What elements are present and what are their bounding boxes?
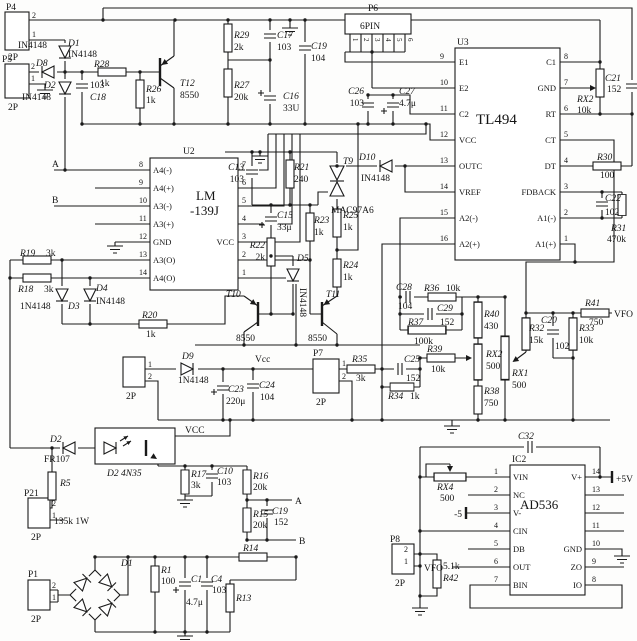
connector-P21 [28, 498, 50, 528]
resistor-R35 [347, 365, 375, 373]
resistor-R1 [151, 566, 159, 592]
svg-text:9: 9 [592, 557, 596, 566]
svg-text:R17: R17 [190, 470, 208, 480]
svg-text:104: 104 [260, 393, 275, 403]
svg-text:152: 152 [607, 85, 622, 95]
svg-text:R13: R13 [235, 594, 252, 604]
svg-text:T12: T12 [180, 79, 195, 89]
svg-text:33U: 33U [283, 104, 300, 114]
svg-text:VCC: VCC [217, 237, 235, 247]
svg-text:430: 430 [484, 322, 499, 332]
svg-text:R31: R31 [610, 224, 626, 234]
diode-FR107 [60, 441, 78, 455]
p6-ref: P6 [368, 4, 378, 14]
p6-type: 6PIN [360, 22, 380, 32]
svg-text:DT: DT [545, 161, 557, 171]
p7-ref: P7 [313, 349, 323, 359]
svg-text:3k: 3k [356, 374, 366, 384]
svg-text:R16: R16 [252, 472, 269, 482]
svg-text:A1(-): A1(-) [537, 213, 556, 223]
svg-text:8: 8 [564, 52, 568, 61]
resistor-R41 [581, 309, 609, 317]
capacitor-C19a [298, 42, 312, 54]
svg-text:IN4148: IN4148 [22, 93, 51, 103]
resistor-R24 [333, 259, 341, 287]
ic2-ref: IC2 [512, 455, 527, 465]
potentiometer-RX2b [474, 344, 482, 380]
p6-pin2: 2 [362, 38, 370, 42]
svg-text:GND: GND [538, 83, 556, 93]
svg-text:V+: V+ [571, 472, 582, 482]
p6-pin5: 5 [395, 38, 403, 42]
p1-type: 2P [31, 615, 41, 625]
svg-text:OUTC: OUTC [459, 161, 482, 171]
svg-text:4: 4 [564, 156, 568, 165]
svg-text:GND: GND [153, 237, 171, 247]
resistor-R29 [224, 24, 232, 52]
svg-text:5: 5 [564, 130, 568, 139]
net-plus5v: +5V [616, 475, 633, 485]
svg-text:IN4148: IN4148 [96, 297, 125, 307]
svg-text:1: 1 [242, 268, 246, 277]
net-VCC: VCC [185, 426, 205, 436]
svg-text:5.1k: 5.1k [443, 562, 460, 572]
svg-text:103: 103 [90, 81, 105, 91]
p21-type: 2P [31, 533, 41, 543]
svg-text:4.7μ: 4.7μ [399, 99, 416, 109]
svg-text:12: 12 [440, 130, 448, 139]
u2-part1: LM [196, 188, 216, 203]
svg-text:R29: R29 [233, 31, 250, 41]
svg-text:20k: 20k [253, 521, 268, 531]
svg-text:8: 8 [592, 575, 596, 584]
diode-D5 [286, 266, 300, 284]
svg-text:C1: C1 [546, 57, 556, 67]
svg-text:103: 103 [230, 175, 245, 185]
capacitor-C32 [524, 440, 536, 454]
svg-text:A2(+): A2(+) [459, 239, 480, 249]
svg-text:103: 103 [350, 99, 365, 109]
svg-text:DB: DB [513, 544, 525, 554]
svg-text:R22: R22 [249, 241, 266, 251]
p5-ref: P5 [2, 55, 12, 65]
svg-text:500: 500 [440, 494, 455, 504]
svg-text:1N4148: 1N4148 [20, 302, 51, 312]
svg-text:103: 103 [212, 586, 227, 596]
svg-text:A4(O): A4(O) [153, 273, 175, 283]
svg-text:2: 2 [494, 485, 498, 494]
net-A-u2: A [52, 160, 59, 170]
svg-text:D2 4N35: D2 4N35 [106, 469, 142, 479]
svg-text:CT: CT [545, 135, 557, 145]
svg-text:R39: R39 [426, 345, 443, 355]
svg-text:10k: 10k [577, 106, 592, 116]
svg-text:VREF: VREF [459, 187, 481, 197]
capacitor-C21 [625, 80, 637, 92]
svg-text:102: 102 [555, 342, 570, 352]
svg-text:R37: R37 [407, 318, 425, 328]
svg-text:T10: T10 [226, 290, 241, 300]
svg-text:C29: C29 [437, 304, 453, 314]
schematic-canvas: P4 2 1 2P P5 2 1 2P P6 6PIN 1 2 3 4 5 6 … [0, 0, 637, 641]
svg-text:VCC: VCC [459, 135, 477, 145]
svg-text:135k 1W: 135k 1W [54, 517, 89, 527]
resistor-R18 [23, 274, 51, 282]
net-B-u2: B [52, 196, 58, 206]
svg-text:C27: C27 [399, 87, 416, 97]
svg-text:3: 3 [494, 503, 498, 512]
p1-ref: P1 [28, 570, 38, 580]
svg-text:D10: D10 [358, 153, 376, 163]
net-VFO-ad536: VFO [424, 564, 443, 574]
svg-text:R35: R35 [351, 355, 368, 365]
svg-text:R20: R20 [141, 311, 158, 321]
svg-text:152: 152 [274, 518, 289, 528]
capacitor-C29 [424, 307, 436, 321]
svg-text:C1: C1 [191, 575, 202, 585]
svg-text:A4(+): A4(+) [153, 183, 174, 193]
svg-text:152: 152 [440, 318, 455, 328]
svg-text:C22: C22 [605, 194, 621, 204]
svg-text:C28: C28 [396, 283, 412, 293]
svg-text:16: 16 [440, 234, 448, 243]
svg-text:C26: C26 [348, 87, 364, 97]
triac-T9 [328, 163, 346, 199]
optocoupler-led [101, 441, 119, 455]
p21-pin2: 2 [52, 499, 56, 508]
svg-text:12: 12 [139, 232, 147, 241]
svg-text:A3(-): A3(-) [153, 201, 172, 211]
svg-text:750: 750 [484, 399, 499, 409]
svg-text:1k: 1k [343, 223, 353, 233]
capacitor-C17 [263, 30, 277, 42]
svg-text:RX1: RX1 [511, 369, 528, 379]
svg-text:14: 14 [440, 182, 448, 191]
svg-text:4: 4 [494, 521, 498, 530]
svg-text:3k: 3k [191, 481, 201, 491]
svg-text:1k: 1k [146, 96, 156, 106]
j1-type: 2P [126, 392, 136, 402]
svg-text:C4: C4 [211, 575, 222, 585]
diode-D4 [83, 286, 97, 304]
svg-text:3k: 3k [44, 285, 54, 295]
diode-D10 [377, 159, 395, 173]
potentiometer-RX4 [434, 473, 466, 481]
svg-text:A3(O): A3(O) [153, 255, 175, 265]
resistor-R33 [569, 318, 577, 350]
j1-pin1: 1 [148, 360, 152, 369]
svg-text:IN4148: IN4148 [68, 50, 97, 60]
svg-text:V-: V- [513, 508, 521, 518]
svg-text:3: 3 [564, 182, 568, 191]
potentiometer-RX2a [596, 69, 604, 97]
p4-pin2: 2 [32, 11, 36, 20]
p8-pin1: 1 [404, 557, 408, 566]
svg-text:750: 750 [589, 318, 604, 328]
svg-text:R41: R41 [584, 299, 600, 309]
resistor-R15 [243, 508, 251, 532]
svg-text:C10: C10 [217, 467, 233, 477]
p6-pin4: 4 [384, 38, 392, 42]
p4-pin1: 1 [32, 30, 36, 39]
ic2-part: AD536 [520, 497, 559, 512]
p5-pin1: 1 [31, 74, 35, 83]
svg-text:R15: R15 [252, 510, 269, 520]
svg-text:3: 3 [242, 232, 246, 241]
svg-text:CIN: CIN [513, 526, 528, 536]
resistor-R40 [474, 302, 482, 338]
svg-text:OUT: OUT [513, 562, 531, 572]
svg-text:FR107: FR107 [44, 455, 70, 465]
svg-text:220μ: 220μ [226, 397, 245, 407]
svg-text:10: 10 [440, 78, 448, 87]
svg-text:RX4: RX4 [436, 483, 454, 493]
svg-text:R21: R21 [293, 163, 309, 173]
p1-pin1: 1 [52, 593, 56, 602]
resistor-R23 [306, 213, 314, 241]
svg-text:IN4148: IN4148 [297, 288, 307, 317]
svg-text:NC: NC [513, 490, 525, 500]
p8-type: 2P [395, 579, 405, 589]
svg-text:13: 13 [440, 156, 448, 165]
svg-text:R25: R25 [342, 211, 359, 221]
p5-type: 2P [8, 103, 18, 113]
resistor-R38 [474, 386, 482, 414]
resistor-R21 [286, 160, 294, 188]
svg-text:102: 102 [605, 208, 620, 218]
svg-text:6: 6 [494, 557, 498, 566]
svg-text:13: 13 [139, 250, 147, 259]
net-A-bottom: A [295, 497, 302, 507]
svg-text:100: 100 [600, 171, 615, 181]
svg-text:152: 152 [406, 374, 421, 384]
svg-text:20k: 20k [253, 483, 268, 493]
svg-text:C19: C19 [311, 42, 327, 52]
svg-text:IN4148: IN4148 [361, 174, 390, 184]
svg-text:C15: C15 [277, 211, 293, 221]
svg-text:1k: 1k [343, 273, 353, 283]
connector-P8 [392, 544, 414, 574]
svg-text:15: 15 [440, 208, 448, 217]
svg-text:10: 10 [592, 539, 600, 548]
p8-pin2: 2 [404, 545, 408, 554]
svg-text:10k: 10k [579, 336, 594, 346]
svg-text:104: 104 [398, 302, 413, 312]
resistor-R5 [48, 472, 56, 500]
svg-text:C18: C18 [90, 93, 106, 103]
net-VFO-r41: VFO [614, 310, 633, 320]
diode-D2 [58, 79, 72, 97]
svg-text:1: 1 [494, 467, 498, 476]
ic-U3-TL494 [455, 48, 560, 260]
svg-text:R1: R1 [160, 566, 172, 576]
capacitor-C20 [546, 326, 560, 338]
connector-J1 [123, 357, 145, 387]
svg-text:D4: D4 [95, 284, 108, 294]
svg-text:R14: R14 [242, 544, 259, 554]
svg-text:RT: RT [546, 109, 557, 119]
svg-text:C23: C23 [228, 385, 244, 395]
resistor-R16 [243, 470, 251, 494]
capacitor-C15 [264, 213, 278, 225]
svg-text:12: 12 [592, 503, 600, 512]
svg-text:R26: R26 [145, 85, 162, 95]
svg-text:E1: E1 [459, 57, 468, 67]
svg-text:2: 2 [564, 208, 568, 217]
svg-text:D2: D2 [43, 81, 56, 91]
svg-text:8: 8 [139, 160, 143, 169]
net-B-bottom: B [299, 537, 305, 547]
svg-text:R34: R34 [387, 392, 404, 402]
u2-ref: U2 [183, 147, 195, 157]
svg-text:7: 7 [494, 575, 498, 584]
u3-ref: U3 [457, 38, 469, 48]
svg-text:R30: R30 [596, 153, 613, 163]
capacitor-C18 [75, 80, 89, 92]
svg-text:500: 500 [486, 362, 501, 372]
p5-pin2: 2 [31, 62, 35, 71]
svg-text:100: 100 [161, 577, 176, 587]
svg-text:14: 14 [592, 467, 600, 476]
svg-text:VIN: VIN [513, 472, 528, 482]
svg-text:D2: D2 [49, 435, 62, 445]
svg-text:R5: R5 [59, 479, 71, 489]
svg-text:1N4148: 1N4148 [178, 376, 209, 386]
svg-text:20k: 20k [234, 93, 249, 103]
svg-text:10: 10 [139, 196, 147, 205]
svg-text:11: 11 [139, 214, 147, 223]
svg-text:1k: 1k [314, 228, 324, 238]
u2-part2: -139J [190, 203, 219, 218]
svg-text:1k: 1k [410, 392, 420, 402]
svg-text:8550: 8550 [308, 334, 327, 344]
svg-text:A4(-): A4(-) [153, 165, 172, 175]
resistor-R20 [139, 320, 167, 328]
svg-text:C21: C21 [605, 74, 621, 84]
svg-text:C2: C2 [459, 109, 469, 119]
p7-pin2: 2 [342, 372, 346, 381]
svg-text:D1: D1 [120, 559, 133, 569]
svg-text:C24: C24 [259, 381, 275, 391]
svg-text:104: 104 [311, 54, 326, 64]
svg-text:500: 500 [512, 381, 527, 391]
svg-text:D8: D8 [35, 59, 48, 69]
svg-text:240: 240 [294, 175, 309, 185]
svg-text:R28: R28 [93, 60, 110, 70]
resistor-R34 [390, 383, 414, 391]
svg-text:4.7μ: 4.7μ [186, 598, 203, 608]
svg-text:2k: 2k [256, 253, 266, 263]
svg-text:R27: R27 [233, 81, 251, 91]
svg-text:14: 14 [139, 268, 147, 277]
resistor-R30 [593, 162, 621, 170]
net-Vcc: Vcc [255, 355, 270, 365]
svg-text:11: 11 [592, 521, 600, 530]
svg-text:2k: 2k [234, 43, 244, 53]
svg-text:R40: R40 [483, 310, 500, 320]
resistor-R22 [267, 238, 275, 266]
connector-P7 [313, 359, 339, 393]
net-minus5: -5 [454, 510, 462, 520]
svg-text:D1: D1 [67, 39, 80, 49]
svg-text:5: 5 [242, 196, 246, 205]
svg-text:C32: C32 [518, 432, 534, 442]
j1-pin2: 2 [148, 372, 152, 381]
diode-D9 [178, 362, 196, 376]
svg-text:A3(+): A3(+) [153, 219, 174, 229]
svg-text:C16: C16 [283, 92, 299, 102]
svg-text:103: 103 [217, 478, 232, 488]
svg-text:C13: C13 [228, 163, 244, 173]
svg-text:RX2: RX2 [485, 350, 503, 360]
svg-text:3k: 3k [46, 249, 56, 259]
svg-text:T11: T11 [326, 290, 340, 300]
svg-text:RX2: RX2 [576, 95, 594, 105]
svg-text:10k: 10k [431, 365, 446, 375]
svg-text:E2: E2 [459, 83, 468, 93]
resistor-R36 [428, 293, 456, 301]
svg-text:IO: IO [573, 580, 582, 590]
svg-text:ZO: ZO [571, 562, 582, 572]
svg-text:C25: C25 [404, 355, 420, 365]
capacitor-C16 [263, 92, 277, 104]
diode-D3 [55, 286, 69, 304]
svg-text:8550: 8550 [236, 334, 255, 344]
svg-text:R42: R42 [442, 574, 459, 584]
svg-text:1k: 1k [146, 330, 156, 340]
resistor-R13 [226, 584, 234, 612]
svg-text:1: 1 [564, 234, 568, 243]
capacitor-C24 [246, 380, 260, 392]
svg-text:R18: R18 [17, 285, 34, 295]
resistor-R39 [427, 354, 455, 362]
svg-text:6: 6 [564, 104, 568, 113]
svg-text:2: 2 [242, 250, 246, 259]
u3-part: TL494 [476, 112, 517, 128]
svg-text:BIN: BIN [513, 580, 528, 590]
resistor-R17 [181, 470, 189, 494]
svg-text:D3: D3 [67, 302, 80, 312]
svg-text:15k: 15k [529, 336, 544, 346]
resistor-R26 [136, 80, 144, 108]
capacitor-C13 [245, 166, 259, 178]
schematic-page: P4 2 1 2P P5 2 1 2P P6 6PIN 1 2 3 4 5 6 … [0, 0, 637, 641]
svg-text:C17: C17 [277, 31, 294, 41]
p4-ref: P4 [6, 3, 16, 13]
svg-text:C20: C20 [541, 316, 557, 326]
svg-text:9: 9 [139, 178, 143, 187]
resistor-R14 [239, 553, 267, 561]
p7-pin1: 1 [342, 359, 346, 368]
svg-text:10k: 10k [446, 284, 461, 294]
svg-text:D5: D5 [296, 254, 309, 264]
svg-text:13: 13 [592, 485, 600, 494]
svg-text:8550: 8550 [180, 91, 199, 101]
svg-text:A1(+): A1(+) [535, 239, 556, 249]
svg-text:4: 4 [242, 214, 246, 223]
capacitor-C27 [386, 99, 400, 111]
svg-text:103: 103 [277, 43, 292, 53]
svg-text:T9: T9 [343, 157, 353, 167]
svg-text:R38: R38 [483, 387, 500, 397]
svg-text:470k: 470k [607, 235, 626, 245]
svg-text:FDBACK: FDBACK [522, 187, 557, 197]
connector-P1 [28, 580, 50, 610]
p6-pin1: 1 [351, 38, 359, 42]
svg-text:11: 11 [440, 104, 448, 113]
svg-text:D9: D9 [181, 352, 194, 362]
p7-type: 2P [316, 398, 326, 408]
